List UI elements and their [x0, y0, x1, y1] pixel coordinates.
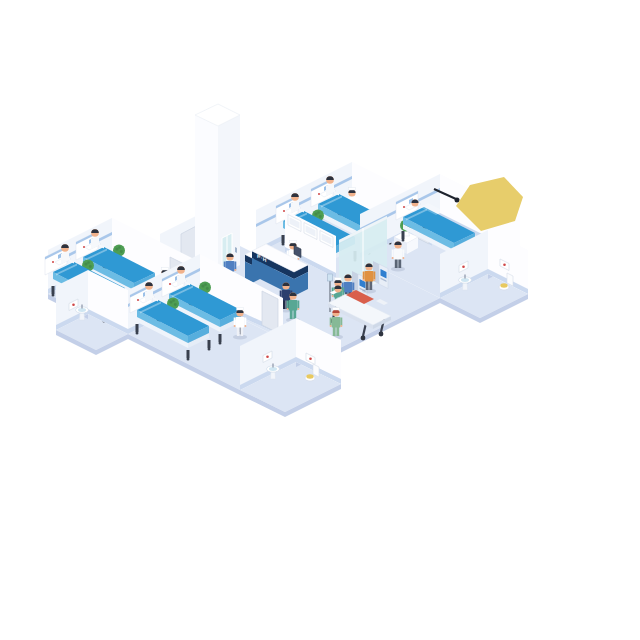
- isometric-hospital-scene: Isometric cutaway illustration of a hosp…: [0, 0, 640, 640]
- scene-root: P·H: [45, 104, 528, 417]
- elevator-call-panel: [235, 247, 237, 253]
- hospital-illustration: Isometric cutaway illustration of a hosp…: [0, 0, 640, 640]
